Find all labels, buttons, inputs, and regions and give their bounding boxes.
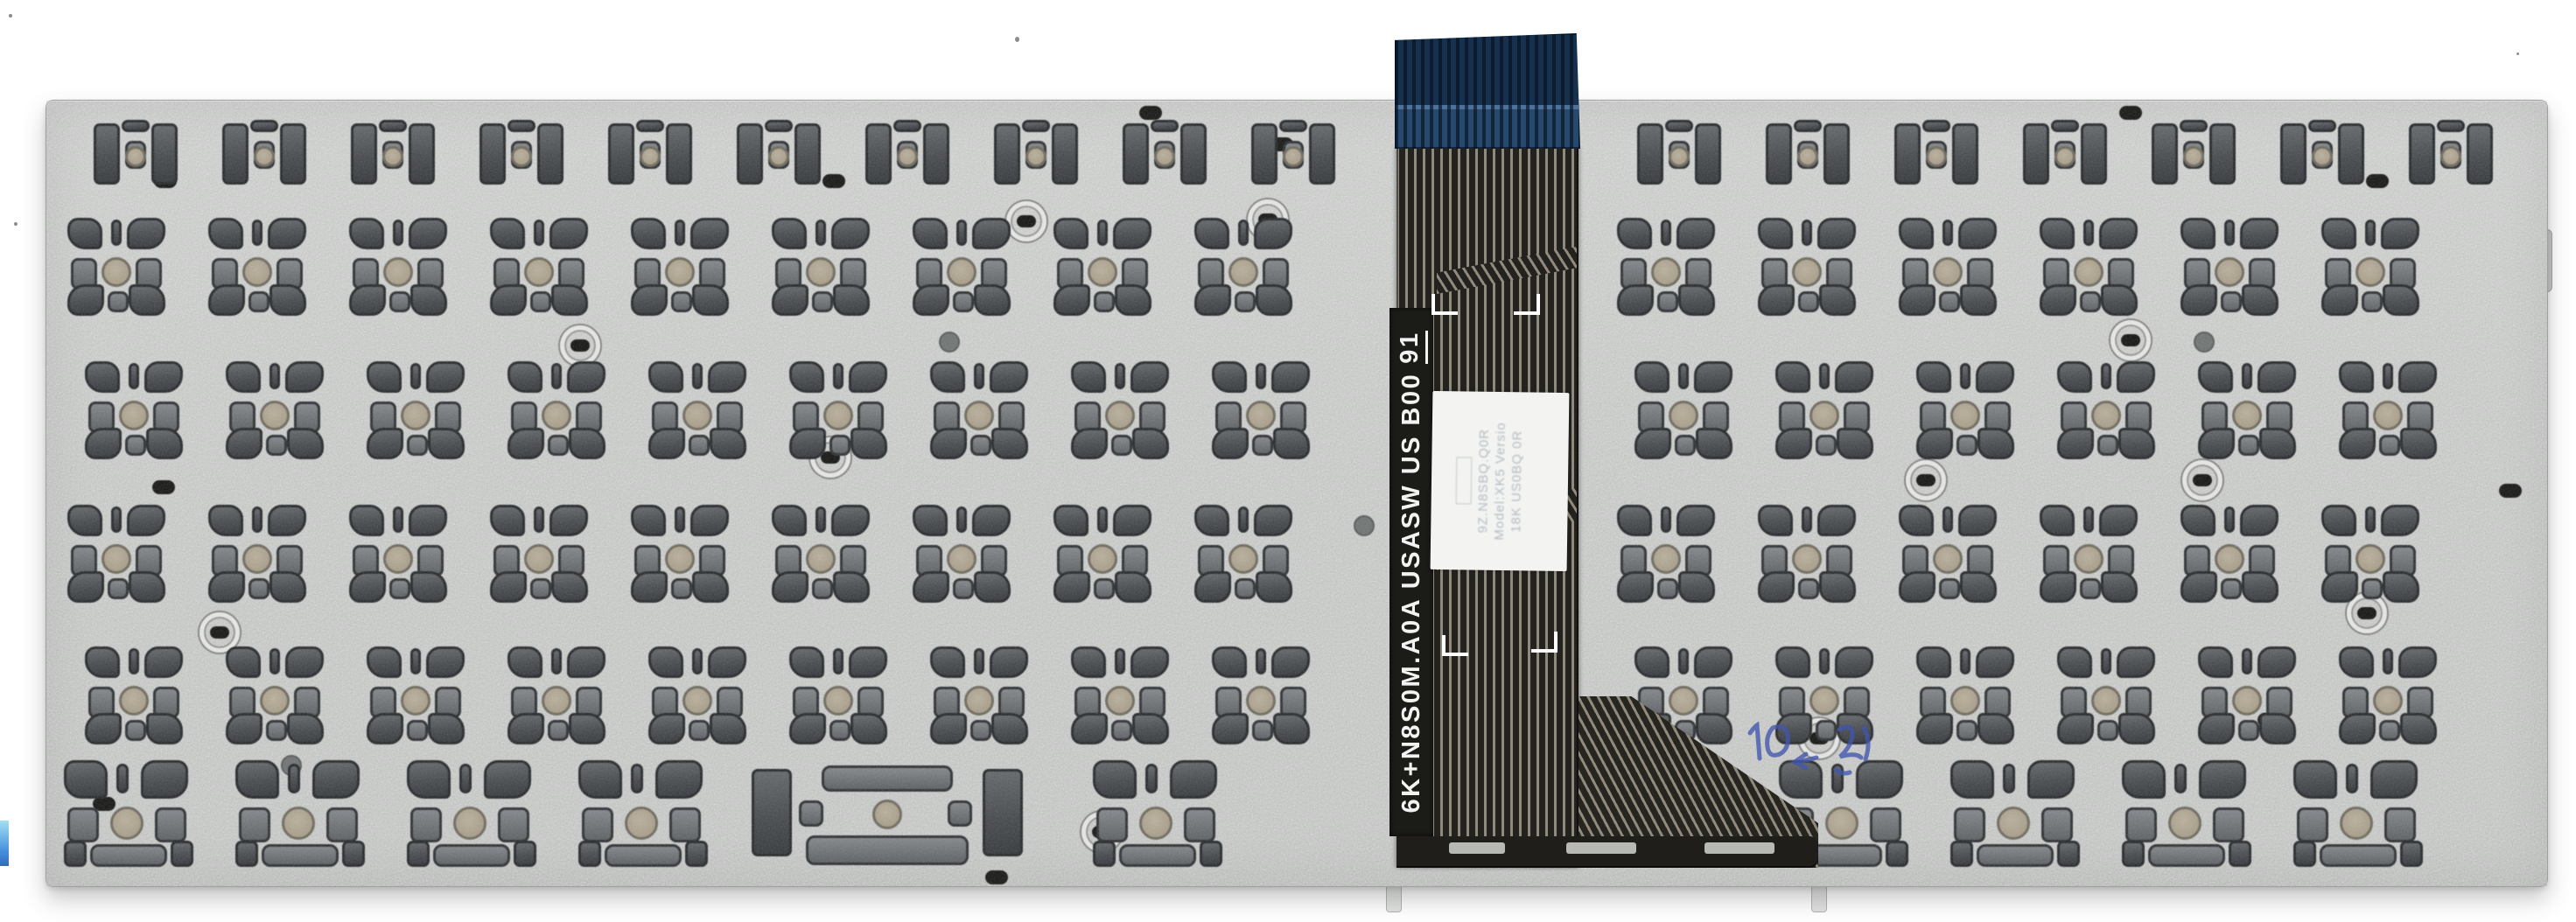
key-clip-cutout (146, 428, 183, 459)
key-clip-cutout (85, 361, 120, 393)
key-clip-cutout (269, 363, 280, 389)
center-hole (1139, 807, 1172, 840)
key-clip-cutout (1758, 284, 1795, 316)
key-clip-cutout (514, 841, 536, 867)
key-clip-cutout (125, 435, 146, 456)
key-mount-cluster (2040, 218, 2138, 316)
key-clip-cutout (85, 713, 122, 744)
key-clip-cutout (2057, 646, 2092, 678)
key-mount-cluster (490, 505, 588, 603)
key-clip-cutout (2198, 428, 2235, 459)
center-hole (964, 686, 994, 716)
key-clip-cutout (426, 646, 465, 678)
key-clip-cutout (772, 505, 807, 536)
key-clip-cutout (1916, 361, 1951, 393)
key-clip-cutout (235, 841, 258, 867)
key-mount-cluster (1775, 361, 1873, 459)
key-clip-cutout (692, 284, 729, 316)
key-clip-cutout (351, 123, 377, 185)
key-clip-cutout (2339, 428, 2376, 459)
key-clip-cutout (765, 120, 793, 132)
key-clip-cutout (2174, 764, 2187, 793)
key-mount-cluster (1899, 218, 1997, 316)
key-clip-cutout (2365, 506, 2376, 533)
key-clip-cutout (548, 720, 569, 741)
center-hole (382, 146, 403, 167)
key-mount-cluster (2321, 218, 2419, 316)
key-clip-cutout (2101, 571, 2138, 603)
center-hole (542, 401, 571, 430)
key-clip-cutout (2321, 505, 2356, 536)
center-hole (2373, 401, 2403, 430)
key-clip-cutout (990, 361, 1028, 393)
center-hole (2183, 146, 2204, 167)
key-clip-cutout (2040, 571, 2076, 603)
key-mount-cluster (913, 218, 1011, 316)
key-clip-cutout (1235, 578, 1256, 599)
key-clip-cutout (752, 769, 792, 856)
key-clip-cutout (913, 284, 949, 316)
key-mount-cluster (1617, 505, 1715, 603)
key-clip-cutout (690, 505, 729, 536)
center-hole (823, 401, 853, 430)
key-clip-cutout (1758, 505, 1793, 536)
key-clip-cutout (409, 505, 447, 536)
key-clip-cutout (1657, 578, 1678, 599)
key-mount-cluster (2180, 218, 2278, 316)
key-mount-cluster (987, 116, 1085, 192)
key-clip-cutout (2381, 505, 2419, 536)
key-clip-cutout (1870, 807, 1901, 842)
part-number-revision: 91 (1396, 331, 1428, 363)
key-clip-cutout (551, 571, 588, 603)
part-number-text: 6K+N8S0M.A0A USASW US B00 (1397, 373, 1426, 814)
key-clip-cutout (2101, 648, 2111, 674)
key-clip-cutout (2320, 844, 2397, 867)
key-clip-cutout (1113, 218, 1151, 249)
key-clip-cutout (269, 284, 306, 316)
key-clip-cutout (2297, 807, 2328, 842)
key-clip-cutout (479, 123, 506, 185)
center-hole (1825, 807, 1858, 840)
key-clip-cutout (342, 841, 365, 867)
key-clip-cutout (285, 361, 324, 393)
center-hole (1105, 686, 1135, 716)
key-clip-cutout (2118, 713, 2155, 744)
key-mount-cluster (2057, 361, 2155, 459)
key-clip-cutout (567, 646, 605, 678)
key-clip-cutout (2379, 720, 2400, 741)
key-clip-cutout (1950, 841, 1973, 867)
key-mount-cluster (490, 218, 588, 316)
key-clip-cutout (812, 578, 833, 599)
key-mount-cluster (235, 760, 367, 869)
key-clip-cutout (1916, 646, 1951, 678)
key-clip-cutout (1617, 571, 1654, 603)
key-mount-cluster (578, 760, 710, 869)
key-clip-cutout (1200, 841, 1222, 867)
key-clip-cutout (631, 284, 668, 316)
key-mount-cluster (64, 760, 195, 869)
key-clip-cutout (490, 284, 527, 316)
key-clip-cutout (507, 120, 535, 132)
key-mount-cluster (2339, 361, 2437, 459)
key-clip-cutout (1252, 435, 1273, 456)
key-clip-cutout (407, 720, 428, 741)
key-clip-cutout (367, 361, 402, 393)
key-clip-cutout (772, 218, 807, 249)
key-clip-cutout (1958, 218, 1997, 249)
key-clip-cutout (675, 220, 685, 246)
key-clip-cutout (1254, 505, 1292, 536)
key-clip-cutout (393, 506, 403, 533)
key-clip-cutout (833, 284, 870, 316)
key-clip-cutout (548, 435, 569, 456)
key-mount-cluster (367, 646, 465, 744)
key-clip-cutout (972, 505, 1011, 536)
key-mount-cluster (1899, 505, 1997, 603)
key-clip-cutout (970, 720, 991, 741)
sticker-barcode-box (1456, 457, 1473, 504)
key-clip-cutout (349, 218, 384, 249)
key-clip-cutout (2080, 291, 2101, 312)
key-clip-cutout (582, 807, 613, 842)
key-clip-cutout (312, 760, 360, 799)
key-clip-cutout (2293, 841, 2316, 867)
key-clip-cutout (829, 435, 850, 456)
key-mount-cluster (2321, 505, 2419, 603)
key-clip-cutout (2437, 120, 2465, 132)
key-clip-cutout (972, 218, 1011, 249)
key-clip-cutout (1634, 646, 1669, 678)
key-clip-cutout (409, 218, 447, 249)
key-clip-cutout (850, 428, 887, 459)
key-mount-cluster (2016, 116, 2114, 192)
key-clip-cutout (806, 835, 969, 865)
key-clip-cutout (974, 571, 1011, 603)
center-hole (2091, 401, 2121, 430)
key-clip-cutout (1093, 760, 1137, 799)
key-clip-cutout (1942, 220, 1953, 246)
key-clip-cutout (1184, 807, 1215, 842)
key-clip-cutout (1823, 123, 1850, 185)
key-clip-cutout (772, 571, 808, 603)
ribbon-end-slot (1449, 842, 1505, 854)
key-clip-cutout (1675, 435, 1696, 456)
key-clip-cutout (2409, 123, 2435, 185)
key-clip-cutout (1256, 363, 1266, 389)
key-mount-layer (46, 101, 2547, 886)
key-clip-cutout (67, 807, 99, 842)
key-clip-cutout (407, 435, 428, 456)
key-clip-cutout (990, 646, 1028, 678)
key-clip-cutout (815, 506, 826, 533)
key-mount-cluster (789, 646, 887, 744)
key-clip-cutout (1617, 218, 1652, 249)
key-clip-cutout (822, 765, 953, 792)
center-hole (640, 146, 661, 167)
center-hole (1933, 257, 1963, 287)
key-clip-cutout (789, 361, 824, 393)
key-clip-cutout (1132, 713, 1169, 744)
key-clip-cutout (1775, 428, 1812, 459)
key-clip-cutout (498, 807, 529, 842)
key-clip-cutout (1271, 361, 1310, 393)
key-clip-cutout (789, 646, 824, 678)
key-clip-cutout (631, 764, 643, 793)
center-hole (1228, 544, 1258, 574)
key-mount-cluster (349, 505, 447, 603)
key-clip-cutout (226, 646, 261, 678)
key-clip-cutout (953, 291, 974, 312)
key-clip-cutout (507, 428, 544, 459)
key-clip-cutout (953, 578, 974, 599)
key-clip-cutout (90, 844, 167, 867)
key-clip-cutout (569, 428, 605, 459)
key-clip-cutout (1976, 361, 2014, 393)
center-hole (1797, 146, 1818, 167)
key-clip-cutout (1094, 578, 1115, 599)
key-clip-cutout (1212, 713, 1249, 744)
key-clip-cutout (974, 648, 984, 674)
center-hole (665, 544, 695, 574)
key-clip-cutout (948, 800, 972, 827)
key-mount-cluster (730, 116, 828, 192)
key-clip-cutout (2259, 713, 2296, 744)
key-clip-cutout (2097, 720, 2118, 741)
key-clip-cutout (2238, 435, 2259, 456)
key-clip-cutout (125, 720, 146, 741)
key-clip-cutout (2057, 841, 2080, 867)
center-hole (2168, 807, 2201, 840)
key-mount-cluster (472, 116, 570, 192)
key-clip-cutout (1798, 291, 1819, 312)
key-clip-cutout (551, 648, 562, 674)
key-mount-cluster (507, 646, 605, 744)
key-mount-cluster (208, 218, 306, 316)
key-clip-cutout (2101, 284, 2138, 316)
key-clip-cutout (1952, 123, 1978, 185)
key-clip-cutout (1694, 361, 1732, 393)
key-clip-cutout (252, 220, 262, 246)
key-clip-cutout (1665, 120, 1693, 132)
center-hole (542, 686, 571, 716)
key-clip-cutout (490, 571, 527, 603)
key-clip-cutout (605, 844, 682, 867)
key-clip-cutout (1053, 284, 1090, 316)
key-mount-cluster (1071, 646, 1169, 744)
key-clip-cutout (913, 505, 948, 536)
sticker-text: 9Z.N8SBQ.Q0R Model:XK5 Versio 18K US0BQ … (1455, 391, 1545, 570)
center-hole (2373, 686, 2403, 716)
center-hole (119, 401, 149, 430)
center-hole (2312, 146, 2333, 167)
key-clip-cutout (111, 220, 122, 246)
key-clip-cutout (1254, 218, 1292, 249)
key-clip-cutout (1256, 571, 1292, 603)
key-clip-cutout (1960, 648, 1970, 674)
key-mount-cluster (344, 116, 442, 192)
key-clip-cutout (1170, 760, 1217, 799)
key-clip-cutout (1916, 713, 1953, 744)
center-hole (119, 686, 149, 716)
key-clip-cutout (1130, 646, 1169, 678)
key-clip-cutout (2180, 218, 2215, 249)
key-mount-cluster (858, 116, 956, 192)
key-mount-cluster (226, 361, 324, 459)
key-mount-cluster (1194, 218, 1292, 316)
key-clip-cutout (428, 713, 465, 744)
key-clip-cutout (1696, 713, 1732, 744)
key-clip-cutout (426, 361, 465, 393)
key-clip-cutout (1798, 578, 1819, 599)
key-clip-cutout (144, 361, 183, 393)
center-hole (1809, 401, 1839, 430)
key-clip-cutout (2099, 505, 2138, 536)
key-clip-cutout (689, 720, 710, 741)
key-clip-cutout (1899, 571, 1935, 603)
key-clip-cutout (1802, 506, 1812, 533)
key-clip-cutout (2321, 284, 2358, 316)
key-mount-cluster (772, 505, 870, 603)
key-clip-cutout (2101, 363, 2111, 389)
center-hole (110, 807, 143, 840)
center-hole (947, 544, 976, 574)
key-clip-cutout (2099, 218, 2138, 249)
key-clip-cutout (608, 123, 634, 185)
metal-backplate (45, 100, 2548, 887)
key-clip-cutout (1071, 361, 1106, 393)
key-clip-cutout (2125, 807, 2157, 842)
key-clip-cutout (2321, 571, 2358, 603)
key-clip-cutout (1251, 123, 1277, 185)
key-clip-cutout (2362, 291, 2383, 312)
key-clip-cutout (226, 428, 262, 459)
key-mount-cluster (349, 218, 447, 316)
key-clip-cutout (1758, 218, 1793, 249)
key-clip-cutout (2384, 807, 2416, 842)
key-clip-cutout (367, 646, 402, 678)
key-clip-cutout (534, 220, 544, 246)
center-hole (823, 686, 853, 716)
key-clip-cutout (983, 769, 1023, 856)
key-clip-cutout (551, 284, 588, 316)
alignment-bracket (1531, 632, 1557, 653)
key-clip-cutout (631, 505, 666, 536)
key-clip-cutout (1954, 807, 1985, 842)
key-clip-cutout (1053, 571, 1090, 603)
key-mount-cluster (631, 505, 729, 603)
key-mount-cluster (2145, 116, 2243, 192)
key-clip-cutout (710, 713, 746, 744)
key-clip-cutout (2362, 578, 2383, 599)
center-hole (242, 257, 272, 287)
key-mount-cluster (648, 361, 746, 459)
key-clip-cutout (379, 120, 407, 132)
alignment-bracket (1514, 294, 1540, 315)
key-clip-cutout (2083, 506, 2094, 533)
key-clip-cutout (831, 505, 870, 536)
key-clip-cutout (2198, 713, 2235, 744)
key-clip-cutout (692, 363, 703, 389)
center-hole (511, 146, 532, 167)
key-mount-cluster (367, 361, 465, 459)
key-clip-cutout (1071, 713, 1108, 744)
key-clip-cutout (280, 123, 306, 185)
key-clip-cutout (2383, 284, 2419, 316)
key-clip-cutout (1819, 363, 1830, 389)
key-mount-cluster (208, 505, 306, 603)
key-clip-cutout (689, 435, 710, 456)
key-clip-cutout (2400, 841, 2423, 867)
center-hole (1792, 544, 1822, 574)
key-clip-cutout (631, 571, 668, 603)
center-hole (2340, 807, 2373, 840)
center-hole (242, 544, 272, 574)
center-hole (806, 544, 836, 574)
key-clip-cutout (2224, 220, 2235, 246)
center-hole (101, 257, 131, 287)
key-clip-cutout (534, 506, 544, 533)
key-clip-cutout (1145, 764, 1158, 793)
key-clip-cutout (1309, 123, 1335, 185)
center-hole (1246, 686, 1276, 716)
key-clip-cutout (269, 648, 280, 674)
center-hole (2054, 146, 2075, 167)
center-hole (2232, 686, 2262, 716)
key-clip-cutout (1835, 361, 1873, 393)
key-clip-cutout (530, 578, 551, 599)
key-clip-cutout (930, 428, 967, 459)
key-clip-cutout (1071, 428, 1108, 459)
key-clip-cutout (1694, 646, 1732, 678)
key-clip-cutout (2242, 284, 2278, 316)
key-clip-cutout (1899, 505, 1934, 536)
key-clip-cutout (1119, 844, 1196, 867)
key-clip-cutout (67, 571, 104, 603)
center-hole (1025, 146, 1046, 167)
key-clip-cutout (428, 428, 465, 459)
key-clip-cutout (1960, 284, 1997, 316)
key-clip-cutout (1942, 506, 1953, 533)
center-hole (1651, 257, 1681, 287)
key-clip-cutout (127, 218, 165, 249)
center-hole (1669, 686, 1698, 716)
key-clip-cutout (1256, 648, 1266, 674)
key-clip-cutout (685, 841, 708, 867)
center-hole (1283, 146, 1304, 167)
key-clip-cutout (146, 713, 183, 744)
key-clip-cutout (1835, 646, 1873, 678)
key-clip-cutout (865, 123, 892, 185)
key-clip-cutout (1194, 218, 1229, 249)
key-mount-cluster (1617, 218, 1715, 316)
key-clip-cutout (690, 218, 729, 249)
key-clip-cutout (2122, 841, 2145, 867)
key-mount-cluster (226, 646, 324, 744)
key-clip-cutout (129, 284, 165, 316)
key-mount-cluster (2198, 646, 2296, 744)
key-clip-cutout (2040, 218, 2075, 249)
key-clip-cutout (2057, 361, 2092, 393)
key-mount-cluster (1916, 646, 2014, 744)
key-mount-cluster (913, 505, 1011, 603)
key-clip-cutout (2400, 428, 2437, 459)
key-clip-cutout (1657, 291, 1678, 312)
key-mount-cluster (2339, 646, 2437, 744)
key-clip-cutout (2209, 123, 2236, 185)
key-clip-cutout (1115, 571, 1151, 603)
